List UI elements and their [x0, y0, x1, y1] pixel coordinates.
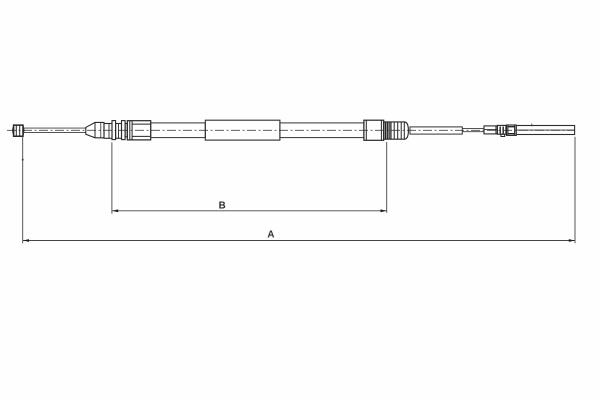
svg-text:A: A — [267, 230, 274, 241]
svg-text:B: B — [219, 201, 226, 212]
